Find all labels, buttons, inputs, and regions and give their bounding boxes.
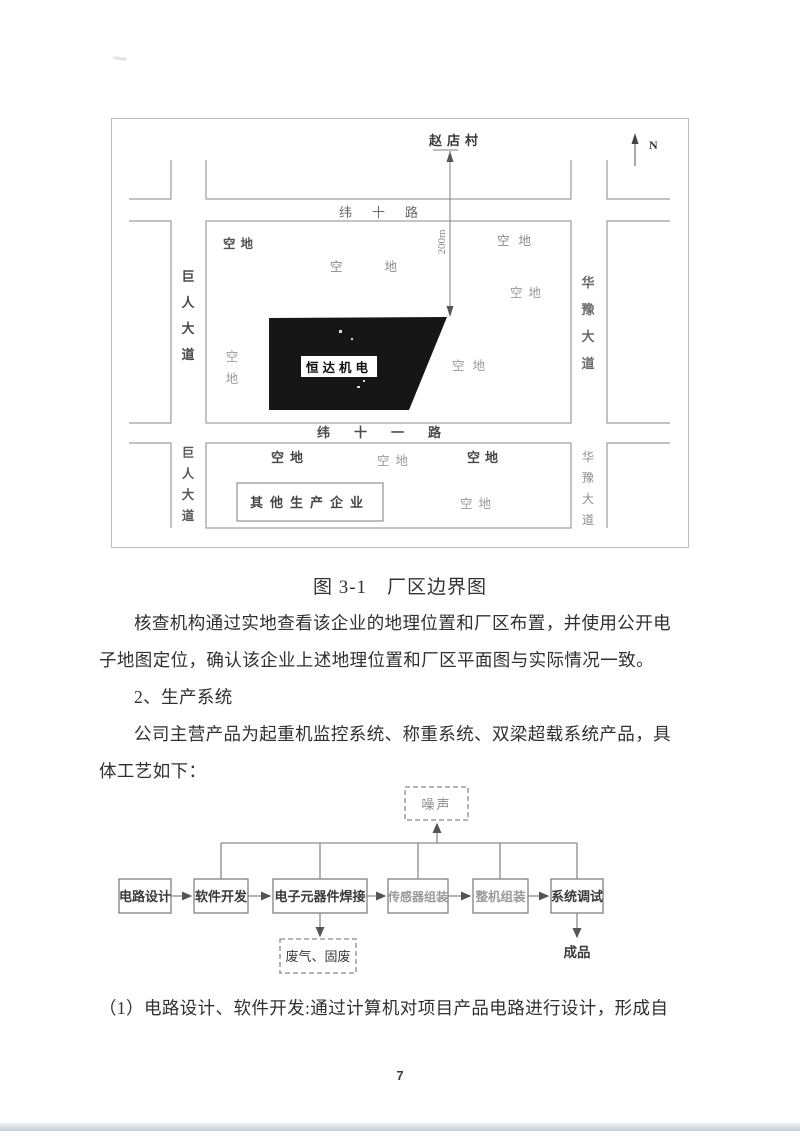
vacant-label: 空地 xyxy=(271,450,309,465)
step-label-component-welding: 电子元器件焊接 xyxy=(274,889,365,904)
noise-collector-lines xyxy=(221,843,577,879)
vacant-label: 空地 xyxy=(460,497,497,511)
vacant-label: 空地 xyxy=(510,286,547,300)
paragraph1-line1: 核查机构通过实地查看该企业的地理位置和厂区布置，并使用公开电 xyxy=(99,610,703,636)
plant-boundary-map: 赵店村 200m N 纬十路 纬十一路 巨人大道 巨人大道 华豫大道 华豫大道 … xyxy=(111,118,689,548)
document-page: 赵店村 200m N 纬十路 纬十一路 巨人大道 巨人大道 华豫大道 华豫大道 … xyxy=(0,0,800,1131)
village-label: 赵店村 xyxy=(428,133,483,148)
page-number: 7 xyxy=(0,1068,800,1083)
step-label-circuit-design: 电路设计 xyxy=(119,889,171,904)
section-heading: 2、生产系统 xyxy=(99,684,703,710)
vacant-label: 空地 xyxy=(330,260,439,274)
vacant-label: 空地 xyxy=(223,236,258,251)
vacant-label: 空地 xyxy=(497,234,540,248)
factory-name-label: 恒达机电 xyxy=(306,360,372,375)
production-flowchart: 噪声 电路设计 软件开发 电子元器件焊接 传感器组装 整机组装 系统调试 xyxy=(100,780,680,980)
step-label-software-dev: 软件开发 xyxy=(195,889,248,904)
paragraph2-line1: 公司主营产品为起重机监控系统、称重系统、双梁超载系统产品，具 xyxy=(99,721,703,747)
road-label-top: 纬十路 xyxy=(339,205,438,220)
vacant-label: 空地 xyxy=(377,454,414,468)
distance-label: 200m xyxy=(436,229,448,255)
road-label-middle: 纬十一路 xyxy=(317,425,465,440)
vacant-label: 空地 xyxy=(452,359,493,373)
step-label-sensor-assembly: 传感器组装 xyxy=(387,889,448,904)
paragraph3-line1: （1）电路设计、软件开发:通过计算机对项目产品电路进行设计，形成自 xyxy=(99,995,703,1021)
step-label-machine-assembly: 整机组装 xyxy=(475,889,526,904)
paragraph1-line2: 子地图定位，确认该企业上述地理位置和厂区平面图与实际情况一致。 xyxy=(99,647,703,673)
noise-label: 噪声 xyxy=(421,797,451,812)
north-label: N xyxy=(649,138,658,152)
step-label-system-debug: 系统调试 xyxy=(551,889,603,904)
scan-bottom-edge xyxy=(0,1123,800,1131)
scan-artifact xyxy=(113,56,127,61)
other-enterprise-label: 其他生产企业 xyxy=(250,495,370,510)
waste-label: 废气、固废 xyxy=(285,949,350,964)
vacant-label: 空地 xyxy=(467,450,503,465)
figure-caption: 图 3-1 厂区边界图 xyxy=(0,572,800,599)
product-label: 成品 xyxy=(564,944,591,960)
